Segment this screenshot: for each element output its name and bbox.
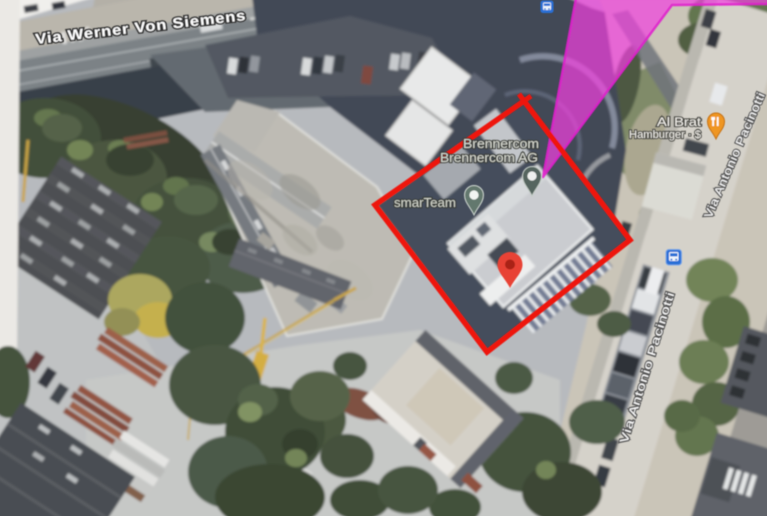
- svg-text:smarTeam: smarTeam: [394, 195, 456, 210]
- svg-text:Hamburger · $: Hamburger · $: [629, 129, 701, 141]
- svg-text:Al Brat: Al Brat: [657, 117, 702, 129]
- svg-text:Brennercom AG: Brennercom AG: [440, 150, 538, 165]
- svg-text:Brennercom: Brennercom: [463, 136, 539, 151]
